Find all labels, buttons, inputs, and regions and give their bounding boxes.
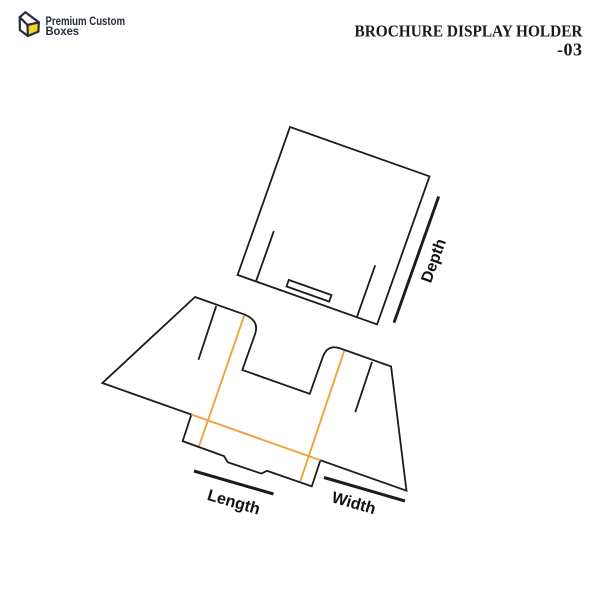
svg-text:Length: Length <box>205 486 262 518</box>
svg-text:-03: -03 <box>557 40 583 60</box>
svg-text:BROCHURE DISPLAY HOLDER: BROCHURE DISPLAY HOLDER <box>355 22 584 41</box>
svg-text:Width: Width <box>330 488 378 518</box>
svg-text:Boxes: Boxes <box>46 24 80 38</box>
